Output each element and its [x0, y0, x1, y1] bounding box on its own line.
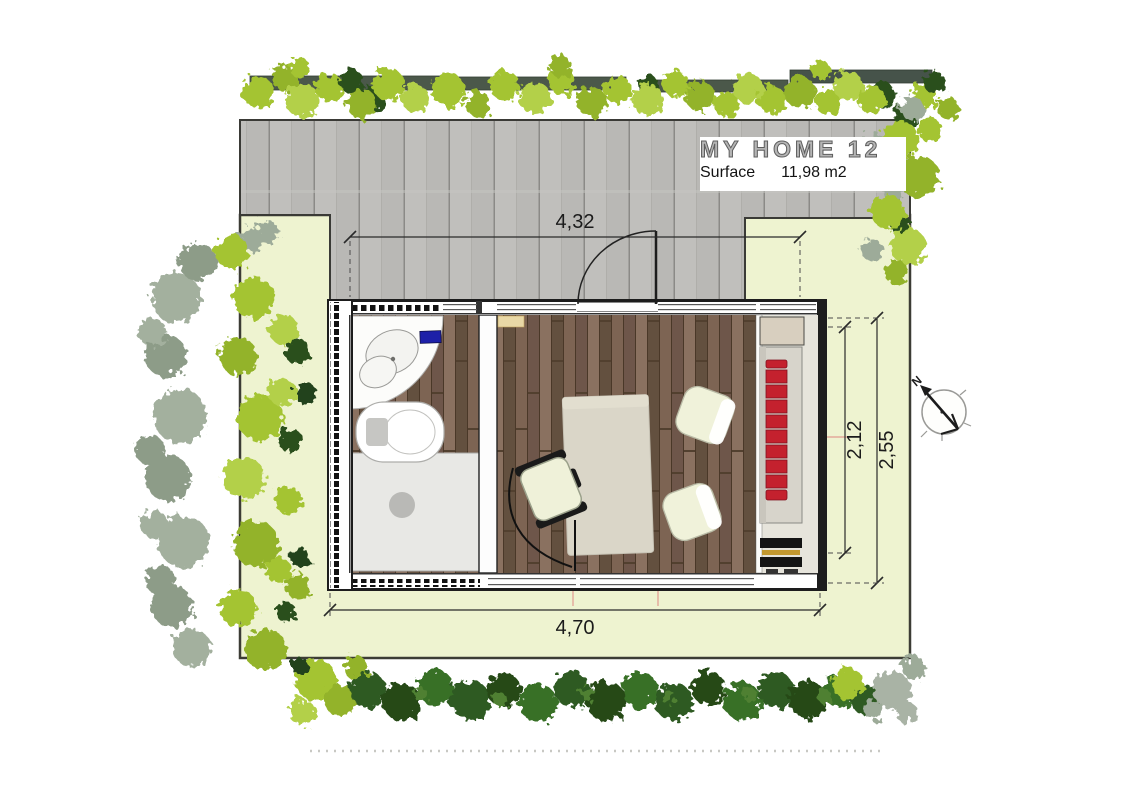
- title-block: MY HOME 12 Surface 11,98 m2: [700, 137, 906, 191]
- sofa: [760, 347, 802, 523]
- bath-mat: [420, 331, 441, 344]
- shower-drain: [389, 492, 415, 518]
- surface-label: Surface: [700, 164, 755, 182]
- top-hedge-foliage: [242, 55, 959, 128]
- dimension-bottom-label: 4,70: [556, 617, 595, 639]
- partition-wall: [479, 315, 497, 573]
- top-hedge: [242, 55, 959, 128]
- shower: [352, 453, 479, 571]
- bottom-wall: [330, 573, 826, 591]
- compass: N: [909, 373, 971, 441]
- project-title: MY HOME 12: [700, 137, 906, 161]
- left-wall: [328, 300, 352, 590]
- surface-line: Surface 11,98 m2: [700, 164, 906, 182]
- insulation-hatch-left: [330, 302, 339, 588]
- building: [328, 299, 826, 591]
- dimension-right-inner-label: 2,12: [844, 421, 866, 460]
- shelf-small: [498, 316, 524, 327]
- insulation-hatch-bottom: [332, 579, 480, 587]
- right-wall: [818, 300, 826, 590]
- floor-plan-drawing: 4,32 4,70 2,55 2,12: [0, 0, 1131, 800]
- dimension-top-label: 4,32: [556, 211, 595, 233]
- surface-value: 11,98 m2: [781, 164, 847, 182]
- closet: [760, 317, 804, 345]
- bottom-hedge: [289, 656, 926, 725]
- floor-plan-canvas: 4,32 4,70 2,55 2,12: [0, 0, 1131, 800]
- toilet: [356, 402, 444, 462]
- dimension-right-outer-label: 2,55: [876, 431, 898, 470]
